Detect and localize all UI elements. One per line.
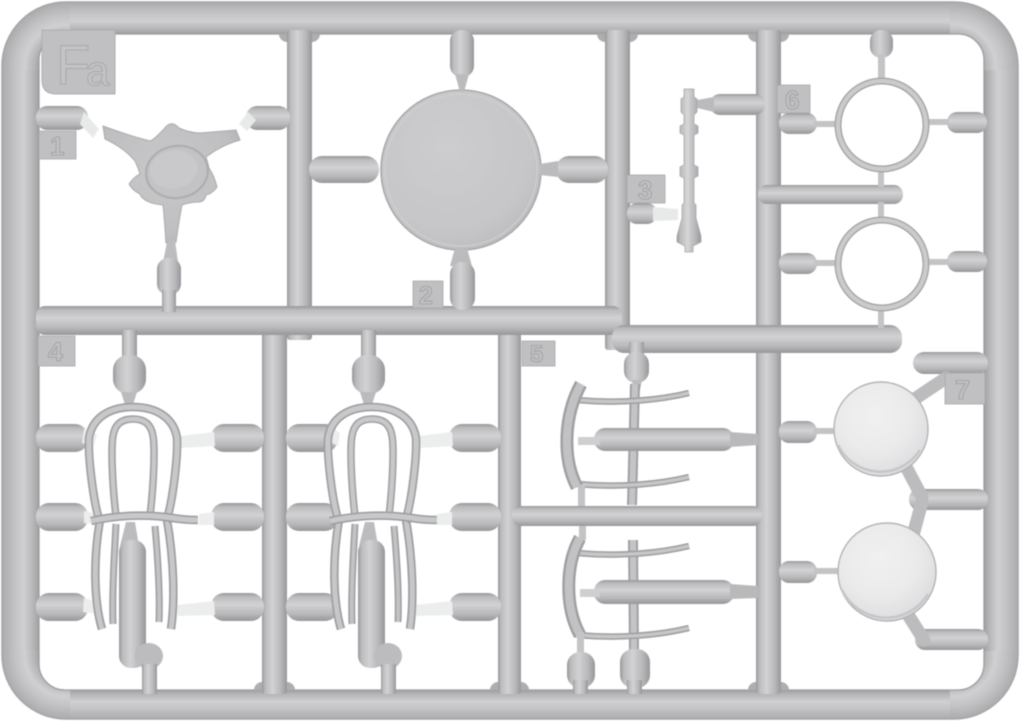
svg-text:2: 2 bbox=[419, 282, 433, 310]
svg-text:7: 7 bbox=[955, 375, 970, 405]
svg-text:1: 1 bbox=[50, 131, 64, 161]
svg-text:6: 6 bbox=[785, 85, 799, 115]
svg-text:4: 4 bbox=[48, 337, 63, 367]
svg-text:3: 3 bbox=[638, 175, 652, 205]
svg-text:5: 5 bbox=[530, 341, 543, 368]
svg-text:a: a bbox=[86, 47, 110, 94]
